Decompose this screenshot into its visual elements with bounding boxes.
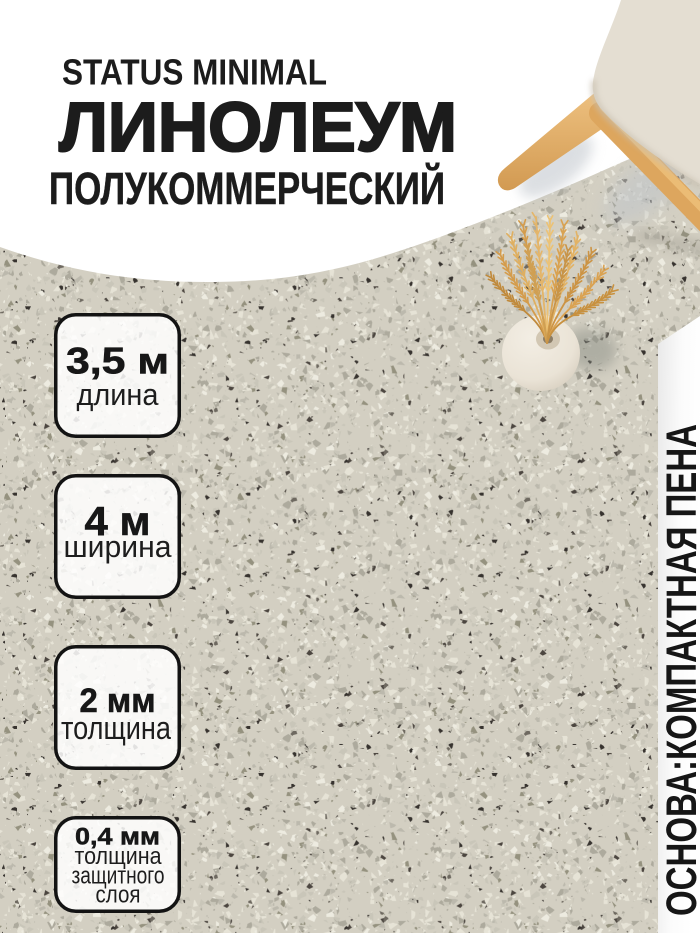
svg-text:ОСНОВА:КОМПАКТНАЯ ПЕНА: ОСНОВА:КОМПАКТНАЯ ПЕНА bbox=[659, 424, 700, 916]
svg-text:ЛИНОЛЕУМ: ЛИНОЛЕУМ bbox=[59, 88, 457, 166]
svg-text:ПОЛУКОММЕРЧЕСКИЙ: ПОЛУКОММЕРЧЕСКИЙ bbox=[49, 163, 445, 214]
svg-text:STATUS MINIMAL: STATUS MINIMAL bbox=[62, 52, 327, 93]
svg-text:3,5 м: 3,5 м bbox=[66, 341, 169, 382]
svg-text:толщина: толщина bbox=[61, 710, 171, 746]
svg-text:ширина: ширина bbox=[64, 529, 173, 564]
svg-text:слоя: слоя bbox=[96, 882, 141, 909]
svg-text:длина: длина bbox=[77, 377, 160, 412]
